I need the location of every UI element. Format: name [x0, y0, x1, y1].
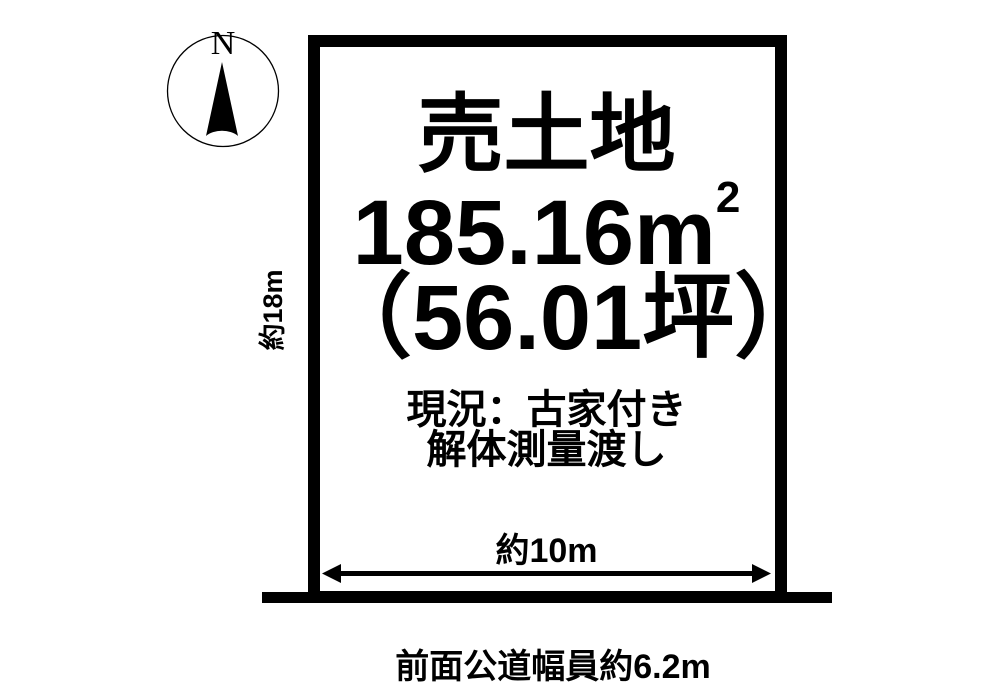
- north-needle-icon: [206, 62, 238, 136]
- demolition-survey-note: 解体測量渡し: [320, 430, 773, 470]
- road-width-caption: 前面公道幅員約6.2m: [308, 639, 798, 688]
- condition-notes: 現況：古家付き 解体測量渡し: [320, 390, 773, 470]
- land-area-m2: 185.16m2: [320, 187, 773, 279]
- current-condition-note: 現況：古家付き: [320, 390, 773, 430]
- frontage-dimension-arrow-icon: [320, 561, 773, 585]
- road-edge-line: [262, 592, 832, 603]
- area-unit-exponent: 2: [716, 173, 740, 222]
- land-plot-diagram: N 売土地 185.16m2 （56.01坪） 現況：古家付き 解体測量渡し 約…: [0, 0, 1000, 700]
- plot-title: 売土地: [320, 92, 773, 178]
- depth-dimension-label: 約18m: [259, 260, 287, 360]
- land-area-tsubo: （56.01坪）: [320, 272, 773, 364]
- north-label: N: [163, 27, 283, 61]
